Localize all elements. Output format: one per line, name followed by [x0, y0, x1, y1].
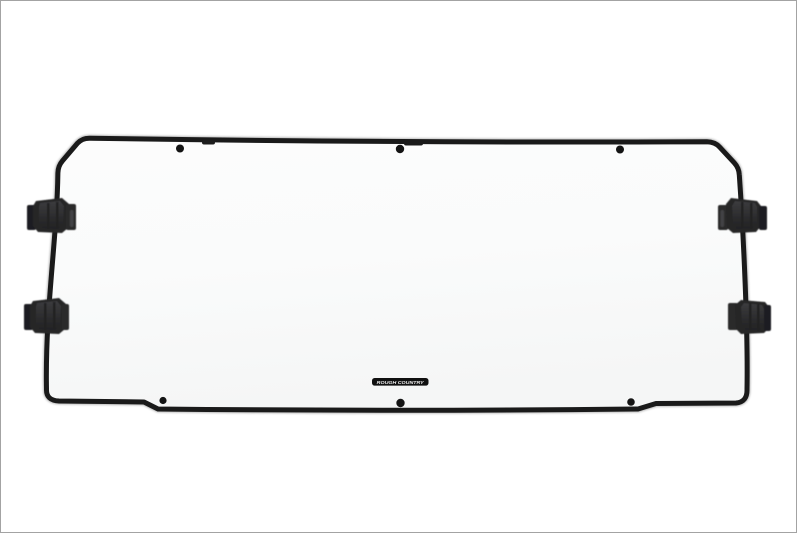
svg-text:ROUGH COUNTRY: ROUGH COUNTRY: [377, 380, 425, 385]
